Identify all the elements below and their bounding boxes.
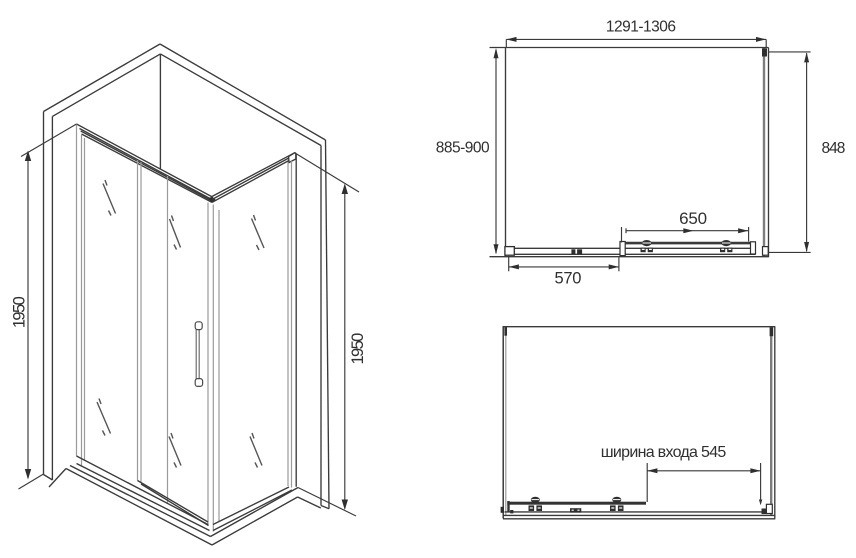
svg-text:848: 848 (822, 140, 845, 157)
svg-text:1950: 1950 (349, 333, 367, 365)
svg-text:1291-1306: 1291-1306 (606, 18, 676, 35)
svg-text:650: 650 (679, 209, 707, 228)
svg-text:570: 570 (554, 270, 581, 288)
svg-text:ширина входа 545: ширина входа 545 (601, 444, 727, 461)
svg-text:885-900: 885-900 (436, 140, 490, 157)
svg-text:1950: 1950 (11, 296, 29, 328)
